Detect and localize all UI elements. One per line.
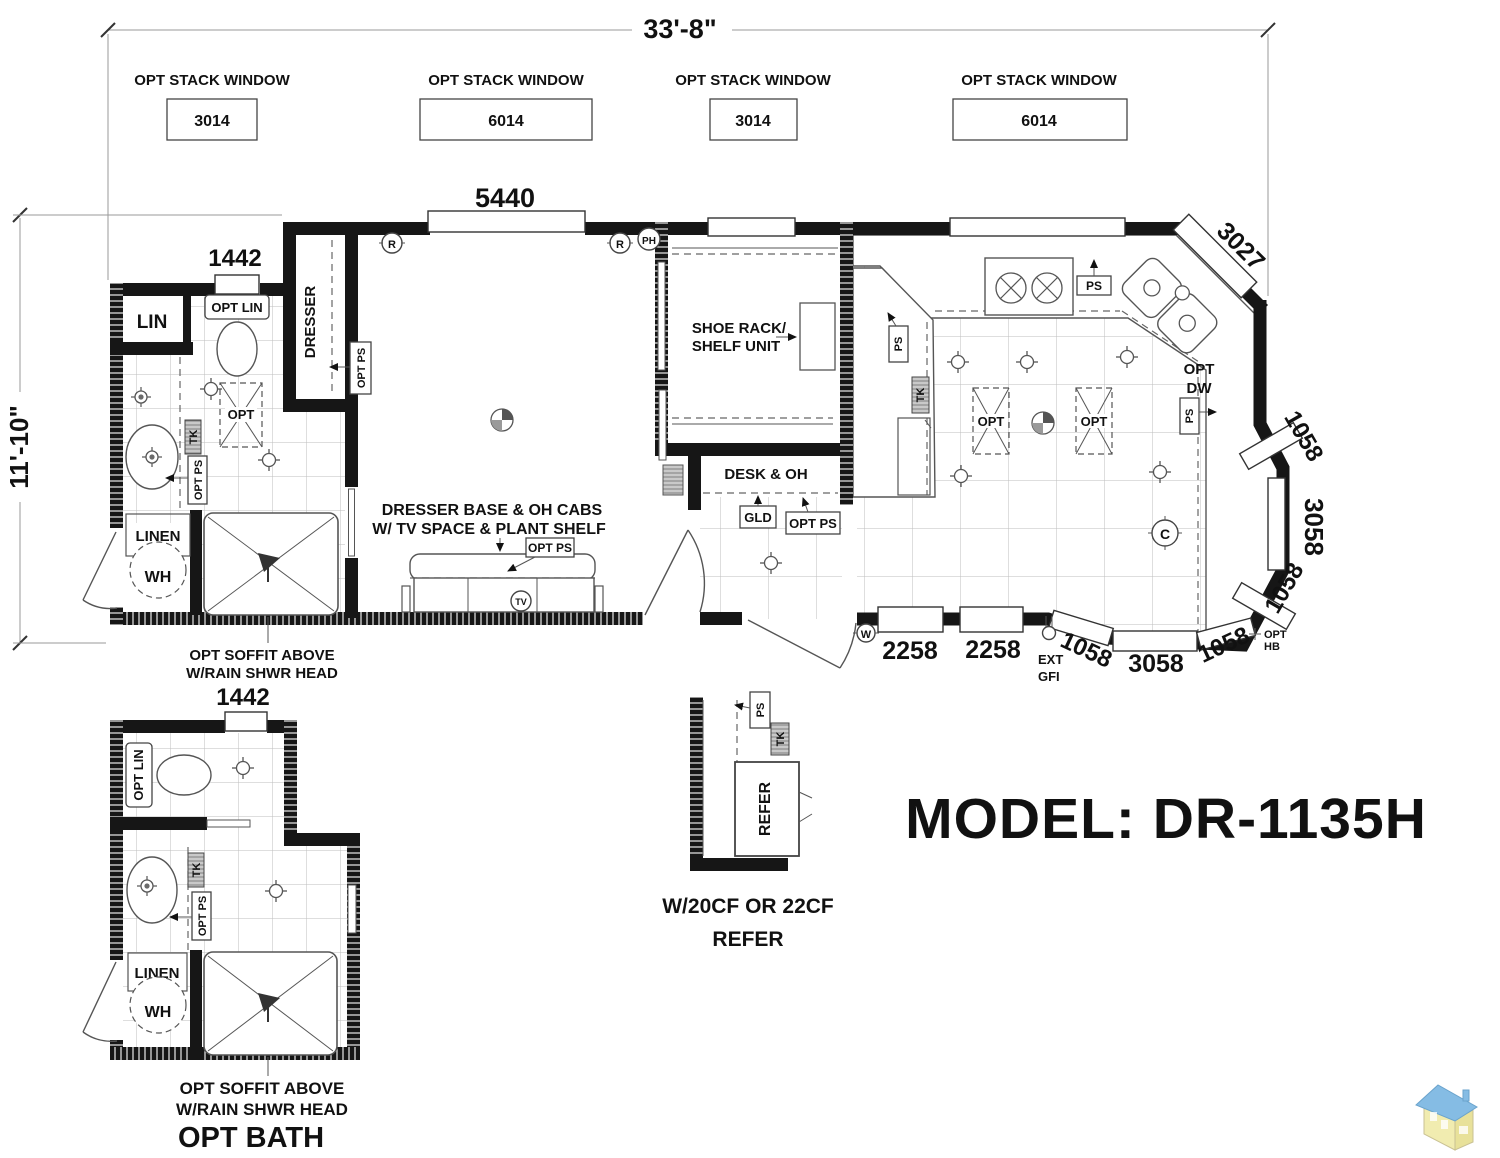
opt-ps-tv-label: OPT PS xyxy=(528,541,572,555)
gld-label: GLD xyxy=(744,510,771,525)
dim-3058b: 3058 xyxy=(1128,650,1184,678)
bay-window-3058-right xyxy=(1268,478,1285,570)
dim-right-3058: 3058 xyxy=(1299,498,1329,556)
seat-window-2258b xyxy=(960,607,1023,632)
water-symbol: W xyxy=(853,624,879,642)
window-dim-1442: 1442 xyxy=(208,245,261,272)
tk-label: TK xyxy=(775,732,787,747)
stack-window-size: 3014 xyxy=(194,113,230,130)
range xyxy=(985,258,1073,315)
shoe-rack-label-1: SHOE RACK/ xyxy=(692,320,787,337)
svg-text:W: W xyxy=(861,629,872,641)
opt-lin-label: OPT LIN xyxy=(131,749,146,800)
opt-skylight-label: OPT xyxy=(978,414,1005,429)
receptacle-r1: R xyxy=(379,233,405,253)
gfi-label: GFI xyxy=(1038,669,1060,684)
shelf-unit xyxy=(800,303,835,370)
opt-skylight-label: OPT xyxy=(1081,414,1108,429)
wh-label: WH xyxy=(145,569,172,586)
model-title: MODEL: DR-1135H xyxy=(905,787,1427,851)
opt-lin-label: OPT LIN xyxy=(211,300,262,315)
bedroom-window xyxy=(428,211,585,232)
stack-window-label: OPT STACK WINDOW xyxy=(675,72,831,89)
opt-hb-label-2: HB xyxy=(1264,641,1280,653)
opt-hb-label-1: OPT xyxy=(1264,629,1287,641)
refer-unit-label: REFER xyxy=(757,781,774,836)
ps-range-label: PS xyxy=(1086,279,1102,293)
logo-house xyxy=(1416,1085,1477,1150)
kitchen-window xyxy=(950,218,1125,236)
svg-text:R: R xyxy=(616,239,624,251)
bay-window-3058b xyxy=(1113,631,1197,651)
stack-window-label: OPT STACK WINDOW xyxy=(428,72,584,89)
dim-2258a: 2258 xyxy=(882,637,938,665)
ceiling-fan xyxy=(1032,412,1054,434)
soffit-note-1: OPT SOFFIT ABOVE xyxy=(189,647,334,664)
tk-label: TK xyxy=(915,388,927,403)
window-dim-1442: 1442 xyxy=(216,684,269,711)
tk-label: TK xyxy=(191,863,203,878)
stack-window-size: 6014 xyxy=(488,113,524,130)
bath-window xyxy=(215,275,259,294)
desk-label: DESK & OH xyxy=(724,466,807,483)
soffit-note-2: W/RAIN SHWR HEAD xyxy=(176,1100,348,1119)
opt-ps-label: OPT PS xyxy=(197,896,209,936)
floorplan-page: 33'-8" OPT STACK WINDOW 3014 OPT STACK W… xyxy=(0,0,1500,1158)
opt-ps-label: OPT PS xyxy=(789,516,837,531)
dresser-label: DRESSER xyxy=(302,286,319,359)
overall-depth-label: 11'-10" xyxy=(4,405,34,489)
floorplan-drawing: 33'-8" OPT STACK WINDOW 3014 OPT STACK W… xyxy=(0,0,1500,1158)
stack-window-label: OPT STACK WINDOW xyxy=(134,72,290,89)
ps-label: PS xyxy=(755,703,767,718)
toilet xyxy=(157,755,211,795)
svg-text:R: R xyxy=(388,239,396,251)
entry-closet: SHOE RACK/ SHELF UNIT DESK & OH GLD OPT … xyxy=(672,248,840,574)
opt-skylight-label: OPT xyxy=(228,407,255,422)
dim-2258b: 2258 xyxy=(965,636,1021,664)
stack-window-size: 3014 xyxy=(735,113,771,130)
svg-text:C: C xyxy=(1160,526,1170,542)
receptacle-r2: R xyxy=(607,233,633,253)
opt-dw-label-2: DW xyxy=(1187,380,1213,397)
window-dim-5440: 5440 xyxy=(475,183,535,213)
dresser-base-note-2: W/ TV SPACE & PLANT SHELF xyxy=(372,521,606,538)
refer-detail: PS TK REFER W/20CF OR 22CF REFER xyxy=(662,692,834,951)
seat-window-2258a xyxy=(878,607,943,632)
refer-caption-1: W/20CF OR 22CF xyxy=(662,895,834,918)
opt-ps-label: OPT PS xyxy=(356,348,368,388)
svg-text:PH: PH xyxy=(642,236,656,247)
stack-window-callouts: OPT STACK WINDOW 3014 OPT STACK WINDOW 6… xyxy=(134,72,1127,140)
vent-fixture xyxy=(663,465,683,495)
closet-window xyxy=(708,218,795,236)
shower xyxy=(204,513,338,615)
shoe-rack-label-2: SHELF UNIT xyxy=(692,338,780,355)
overall-width-label: 33'-8" xyxy=(643,14,716,44)
dresser-base-unit: TV xyxy=(402,554,603,612)
shower xyxy=(204,952,337,1055)
tv-label: TV xyxy=(515,597,527,607)
ps-dw-label: PS xyxy=(1184,409,1196,424)
ceiling-fan xyxy=(491,409,513,431)
dresser-base-note-1: DRESSER BASE & OH CABS xyxy=(382,502,603,519)
ps-wall-label: PS xyxy=(893,337,905,352)
soffit-note-1: OPT SOFFIT ABOVE xyxy=(180,1079,345,1098)
optbath-window xyxy=(225,712,267,731)
tk-label: TK xyxy=(188,430,200,445)
refer-caption-2: REFER xyxy=(712,928,783,951)
opt-dw-label-1: OPT xyxy=(1184,361,1215,378)
opt-bath-title: OPT BATH xyxy=(178,1122,324,1154)
lin-label: LIN xyxy=(137,312,168,333)
toilet xyxy=(217,322,257,376)
stack-window-label: OPT STACK WINDOW xyxy=(961,72,1117,89)
stack-window-size: 6014 xyxy=(1021,113,1057,130)
phone-symbol: PH xyxy=(638,228,660,250)
opt-ps-label: OPT PS xyxy=(193,460,205,500)
soffit-note-2: W/RAIN SHWR HEAD xyxy=(186,665,338,682)
wh-label: WH xyxy=(145,1004,172,1021)
opt-hb-symbol: OPT HB xyxy=(1249,628,1287,653)
ext-label: EXT xyxy=(1038,652,1063,667)
